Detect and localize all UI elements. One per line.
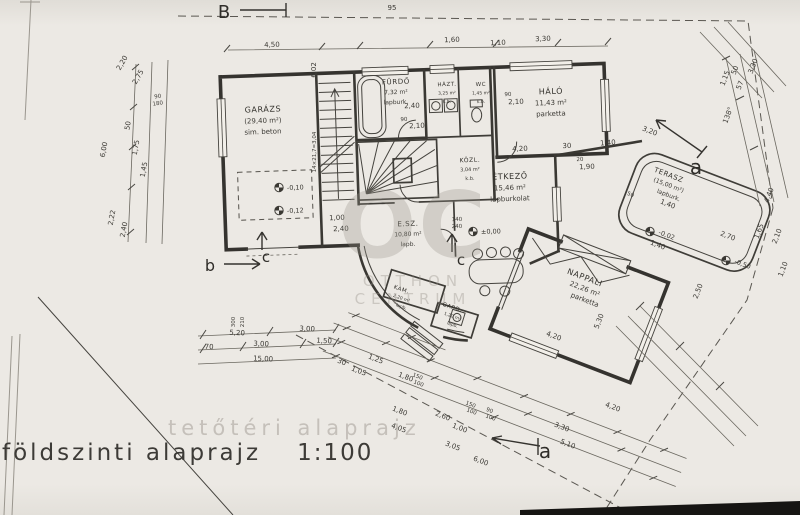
room-label-halo: HÁLÓ [539,85,564,97]
dim-label: 2,40 [119,221,130,238]
dim-label: 90 [504,92,512,98]
dim-label: 2,10 [771,228,784,245]
dim-label: 6,00 [99,141,110,158]
section-marker-a: a [539,439,551,463]
room-area-esz: 10,80 m² [394,231,422,239]
section-marker-b: b [205,256,215,275]
room-area-wc: 1,45 m² [472,90,490,97]
dim-label: 210 [240,316,246,327]
room-label-etkezo: ÉTKEZŐ [492,169,528,181]
room-labels: GARÁZS(29,40 m²)sim. betonFÜRDŐ7,32 m²la… [244,77,685,330]
windows [216,59,613,233]
level-value: -0,12 [287,206,304,215]
ghost-title: tetőtéri alaprajz [168,416,421,440]
dim-label: 2,20 [115,54,130,72]
dim-label: 3,30 [535,35,551,44]
dim-label: 5,10 [559,438,576,451]
level-value: -0,10 [287,183,304,192]
scan-edge-shadow [520,501,800,515]
section-marker-b: B [218,2,230,23]
dim-label: 95 [388,4,397,12]
dim-label: 50 [626,191,635,199]
dim-label: 4,50 [264,41,280,50]
dim-label: 100 [465,407,477,417]
dim-label: 3,05 [444,440,461,453]
dim-label: 180 [152,100,164,107]
drawing-scale: 1:100 [297,440,373,466]
sheet-edge-lines [4,0,40,515]
dim-label: 4,20 [604,401,621,414]
room-label-garazs: GARÁZS [244,102,281,114]
entry-small-rooms [379,270,483,338]
room-area-etkezo: 15,46 m² [494,183,526,192]
section-marker-a: a [690,155,702,179]
dim-label: 90 [154,93,162,100]
level-value: -0,02 [657,228,676,241]
room-finish-hazt: k.b. [443,99,452,105]
dim-label: 6,02 [310,62,318,78]
dim-label: 2,60 [434,410,451,423]
dim-label: 3,00 [299,325,315,334]
rotated-wing [489,120,776,412]
dim-label: 240 [452,224,463,230]
dim-label: 100 [484,413,496,423]
room-finish-garazs: sim. beton [244,127,281,136]
room-label-furdo: FÜRDŐ [382,77,410,87]
dim-label: 1,05 [350,365,367,378]
room-label-esz: E.SZ. [397,220,418,229]
room-label-wc: WC [476,82,487,88]
dim-label: 1,90 [579,163,595,172]
room-label-hazt: HÁZT. [437,81,456,89]
dim-label: 300 [231,316,237,327]
section-arrows [224,3,707,455]
room-area-furdo: 7,32 m² [384,89,408,97]
dim-label: 90 [400,117,408,123]
dim-label: 30 [336,357,347,368]
room-finish-kozl: k.b. [465,176,475,182]
dim-label: 1,10 [490,39,506,48]
dim-label: 30 [562,142,571,150]
dim-label: 2,40 [333,225,349,234]
dim-label: 70 [204,343,213,351]
room-finish-wc: k.b. [477,99,486,105]
dim-label: 1,00 [451,422,468,435]
dim-label: 6,00 [472,455,489,468]
dimension-labels: 4,506,0214×21,7=3,04951,601,103,302,202,… [99,4,790,468]
dim-label: 2,75 [131,68,146,86]
dim-label: 1,75 [131,139,142,156]
dim-label: 2,70 [719,230,736,243]
dim-label: 4,20 [545,330,562,343]
dim-label: 57 [735,80,746,91]
dim-label: 1,10 [777,261,790,278]
dim-label: 1,60 [444,36,460,45]
room-area-hazt: 3,25 m² [438,90,456,97]
room-area-halo: 11,43 m² [535,98,567,107]
dim-label: 15,00 [253,354,273,363]
dim-label: 2,10 [409,122,425,131]
dim-label: 1,00 [329,214,345,223]
room-finish-etkezo: lapburkolat [490,194,530,203]
dim-label: 5,20 [229,329,245,338]
room-finish-halo: parketta [536,109,566,118]
dim-label: 1,45 [139,161,150,178]
room-area-kozl: 3,04 m² [460,167,480,174]
property-line [38,297,233,515]
room-area-garazs: (29,40 m²) [244,116,282,125]
dim-label: 1,40 [600,138,616,147]
dim-label: 140 [452,217,463,223]
dim-label: 3,30 [553,421,570,434]
dim-label: 2,10 [508,98,524,107]
drawing-title: földszinti alaprajz [2,440,261,466]
dim-label: 14×21,7=3,04 [312,131,318,172]
dim-label: 2,40 [404,102,420,111]
dim-label: 3,20 [641,125,658,138]
section-marker-c: c [262,248,270,266]
dim-label: 1,40 [649,239,666,252]
title-block: földszinti alaprajz1:100 [2,440,373,466]
dim-label: 3,00 [253,340,269,349]
room-finish-esz: lapb. [400,241,415,249]
dim-label: 2,50 [692,283,705,300]
level-value: ±0,00 [481,227,501,236]
section-marker-c: c [457,251,465,269]
dim-label: 50 [123,121,132,131]
dim-label: 5,30 [593,313,606,330]
scanned-floor-plan-sheet: GARÁZS(29,40 m²)sim. betonFÜRDŐ7,32 m²la… [0,0,800,515]
room-label-kozl: KÖZL. [459,157,480,165]
dim-label: 2,22 [107,209,118,226]
dim-label: 4,20 [512,145,528,154]
dim-label: 1,50 [316,337,332,346]
dim-label: 1,25 [367,353,384,366]
dim-label: 50 [730,65,741,76]
dim-label: 138° [721,106,735,125]
